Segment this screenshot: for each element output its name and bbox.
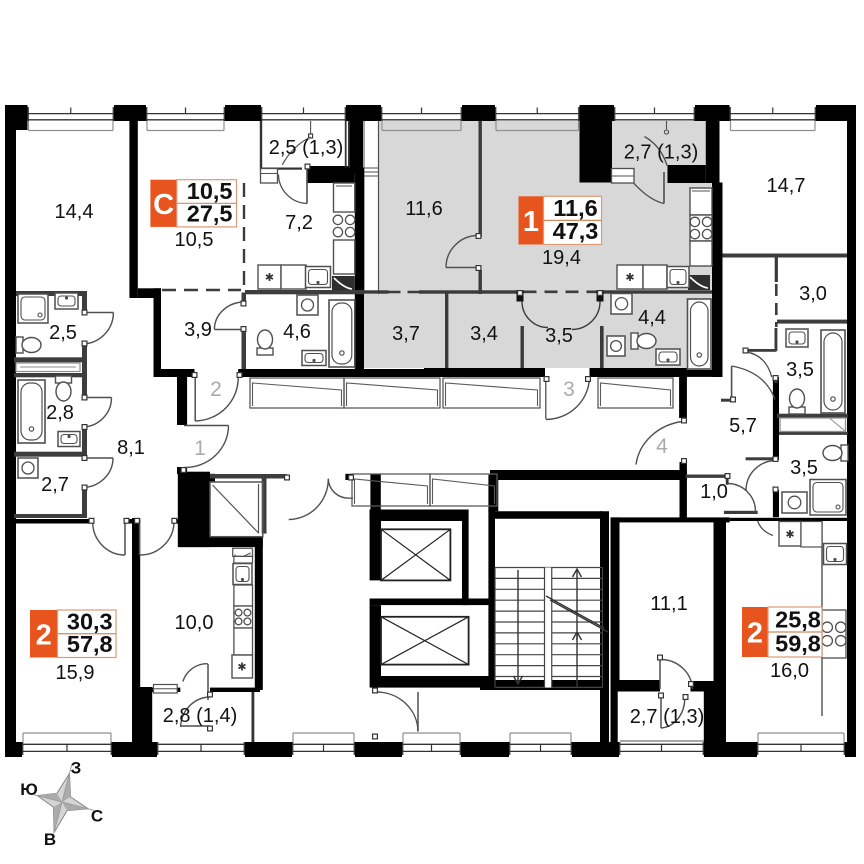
svg-text:1: 1: [194, 437, 206, 460]
svg-text:19,4: 19,4: [542, 247, 581, 269]
svg-text:3: 3: [563, 378, 575, 401]
svg-text:3,7: 3,7: [392, 323, 420, 345]
svg-text:2,8 (1,4): 2,8 (1,4): [163, 705, 237, 727]
svg-text:2: 2: [210, 378, 222, 401]
svg-text:4,6: 4,6: [283, 321, 311, 343]
svg-text:2,7 (1,3): 2,7 (1,3): [630, 706, 704, 728]
svg-text:57,8: 57,8: [67, 631, 113, 657]
svg-text:15,9: 15,9: [56, 662, 95, 684]
svg-text:27,5: 27,5: [187, 200, 233, 226]
svg-text:2,5: 2,5: [49, 322, 77, 344]
svg-text:С: С: [153, 189, 174, 221]
svg-text:2: 2: [36, 619, 52, 651]
svg-text:2: 2: [747, 618, 763, 650]
svg-text:✱: ✱: [625, 272, 634, 284]
svg-text:11,6: 11,6: [553, 195, 597, 221]
svg-text:3,0: 3,0: [799, 283, 827, 305]
svg-text:47,3: 47,3: [553, 218, 599, 244]
svg-text:2,7 (1,3): 2,7 (1,3): [624, 142, 698, 164]
svg-text:25,8: 25,8: [775, 607, 821, 633]
svg-text:Ю: Ю: [20, 780, 38, 799]
svg-text:11,1: 11,1: [650, 593, 687, 615]
svg-text:2,8: 2,8: [46, 402, 74, 424]
svg-text:1: 1: [523, 206, 539, 238]
svg-text:10,5: 10,5: [175, 229, 214, 251]
svg-text:✱: ✱: [265, 272, 274, 284]
svg-text:5,7: 5,7: [729, 415, 757, 437]
svg-text:2,5 (1,3): 2,5 (1,3): [269, 137, 343, 159]
svg-text:2,7: 2,7: [41, 474, 69, 496]
svg-text:11,6: 11,6: [405, 198, 442, 220]
svg-text:3,5: 3,5: [786, 359, 814, 381]
svg-text:4: 4: [656, 435, 668, 458]
svg-text:16,0: 16,0: [770, 660, 809, 682]
svg-text:59,8: 59,8: [775, 631, 821, 657]
svg-text:3,4: 3,4: [470, 323, 498, 345]
svg-text:3,5: 3,5: [790, 457, 818, 479]
svg-text:✱: ✱: [785, 529, 794, 541]
svg-text:8,1: 8,1: [117, 437, 145, 459]
svg-text:14,4: 14,4: [55, 201, 94, 223]
svg-text:14,7: 14,7: [767, 175, 806, 197]
svg-text:В: В: [44, 830, 56, 849]
svg-text:З: З: [71, 759, 82, 778]
svg-text:7,2: 7,2: [285, 212, 313, 234]
svg-text:3,9: 3,9: [184, 319, 212, 341]
svg-text:4,4: 4,4: [638, 307, 666, 329]
svg-text:✱: ✱: [237, 661, 246, 673]
svg-text:С: С: [91, 807, 103, 826]
svg-text:10,0: 10,0: [175, 612, 214, 634]
svg-text:1,0: 1,0: [700, 481, 728, 503]
svg-text:3,5: 3,5: [545, 325, 573, 347]
